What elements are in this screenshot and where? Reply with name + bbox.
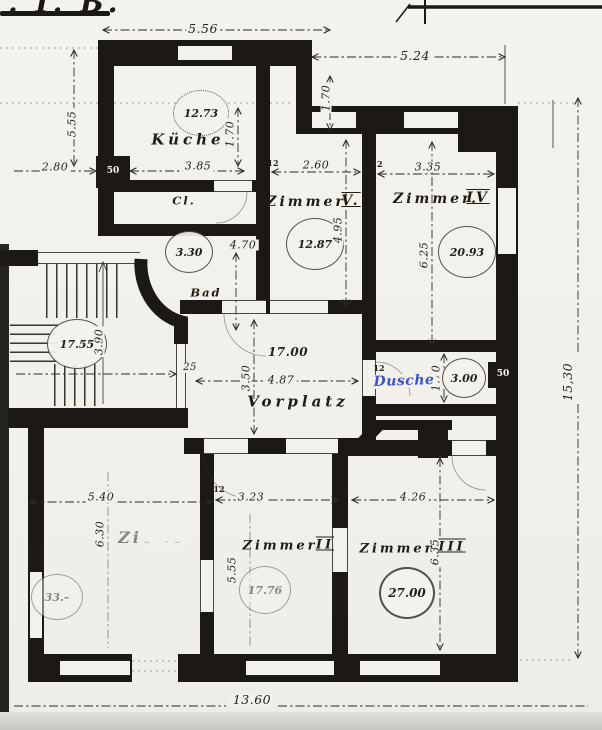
room-numeral-zimmer3: III: [436, 541, 467, 554]
dim-zimmer4-width: 3.35: [413, 162, 444, 173]
marker-wall-25: 25: [181, 363, 199, 373]
dim-vorplatz-width: 4.87: [266, 375, 297, 386]
area-circle-zimmer4: 20.93: [438, 226, 496, 278]
dim-left-height: 5.55: [67, 109, 78, 140]
dim-vorplatz-depth: 3.50: [241, 363, 252, 394]
marker-wall-50: 50: [107, 166, 120, 176]
dim-zimmer2-depth: 5.55: [227, 555, 238, 586]
dim-top-kueche: 5.56: [186, 23, 220, 36]
room-label-zimmer5: Zimmer: [264, 195, 347, 209]
room-label-zimmer2: Zimmer: [240, 540, 319, 553]
marker-wall-12: 12: [337, 484, 348, 494]
marker-wall-12: 12: [373, 363, 384, 373]
title-underline: [0, 11, 110, 16]
marker-wall-12: 12: [213, 484, 224, 494]
floor-plan: . I. B.: [0, 0, 602, 730]
dim-window-top: 1.70: [321, 83, 332, 114]
room-numeral-zimmer4: IV: [464, 191, 491, 205]
dim-zimmer1-depth: 6.30: [95, 519, 106, 550]
dim-corridor: 4.70: [228, 240, 259, 251]
area-circle-dusche: 3.00: [442, 358, 486, 398]
dim-bottom-total: 13.60: [231, 694, 273, 707]
area-circle-kueche: 12.73: [173, 90, 229, 136]
room-numeral-zimmer5: V.: [339, 194, 362, 208]
area-circle-cl: 3.30: [165, 231, 213, 273]
area-circle-zimmer2: 17.76: [239, 566, 291, 614]
dim-zimmer5-depth: 4.95: [333, 215, 344, 246]
area-zimmer2: 17.76: [248, 584, 282, 597]
area-zimmer5: 12.87: [298, 238, 332, 251]
area-dusche: 3.00: [451, 372, 478, 385]
room-label-zimmer3: Zimmer: [357, 543, 436, 556]
area-zimmer4: 20.93: [450, 246, 484, 259]
area-zimmer1: 33.–: [45, 591, 70, 604]
plan-title-fragment: . I. B.: [8, 0, 122, 19]
dim-zimmer1-width: 5.40: [86, 492, 117, 503]
room-label-dusche: Dusche: [371, 373, 436, 389]
dim-right-total: 15,30: [562, 361, 575, 403]
room-label-kueche: Küche: [149, 133, 226, 148]
area-treppe: 17.55: [60, 338, 94, 351]
room-numeral-zimmer2: II: [314, 539, 336, 552]
room-label-zimmer1: Zi: [116, 530, 144, 546]
area-circle-zimmer3: 27.00: [379, 567, 435, 619]
area-circle-zimmer1: 33.–: [31, 574, 83, 620]
dim-kueche-width: 3.85: [183, 161, 214, 172]
marker-wall-12: 12: [371, 159, 382, 169]
area-zimmer3: 27.00: [388, 586, 426, 600]
dim-zimmer4-depth: 6.25: [419, 240, 430, 271]
marker-wall-50: 50: [497, 369, 510, 379]
scan-bottom-band: [0, 712, 602, 730]
marker-wall-12: 12: [267, 158, 278, 168]
room-label-zimmer1-faded: – ·–: [142, 537, 188, 548]
room-label-cl: Cl.: [170, 195, 198, 207]
dim-zimmer3-width: 4.26: [398, 492, 429, 503]
dim-top-right: 5.24: [398, 50, 432, 63]
dim-entry-width: 2.80: [40, 162, 71, 173]
area-kueche: 12.73: [184, 107, 218, 120]
room-label-vorplatz: Vorplatz: [245, 395, 351, 410]
dim-zimmer2-width: 3.23: [236, 492, 267, 503]
area-cl: 3.30: [176, 246, 203, 259]
dim-stair-depth: 3.90: [94, 327, 105, 358]
room-label-bad: Bad: [188, 287, 223, 299]
dim-zimmer5-width: 2.60: [301, 160, 332, 171]
area-vorplatz: 17.00: [266, 346, 310, 358]
